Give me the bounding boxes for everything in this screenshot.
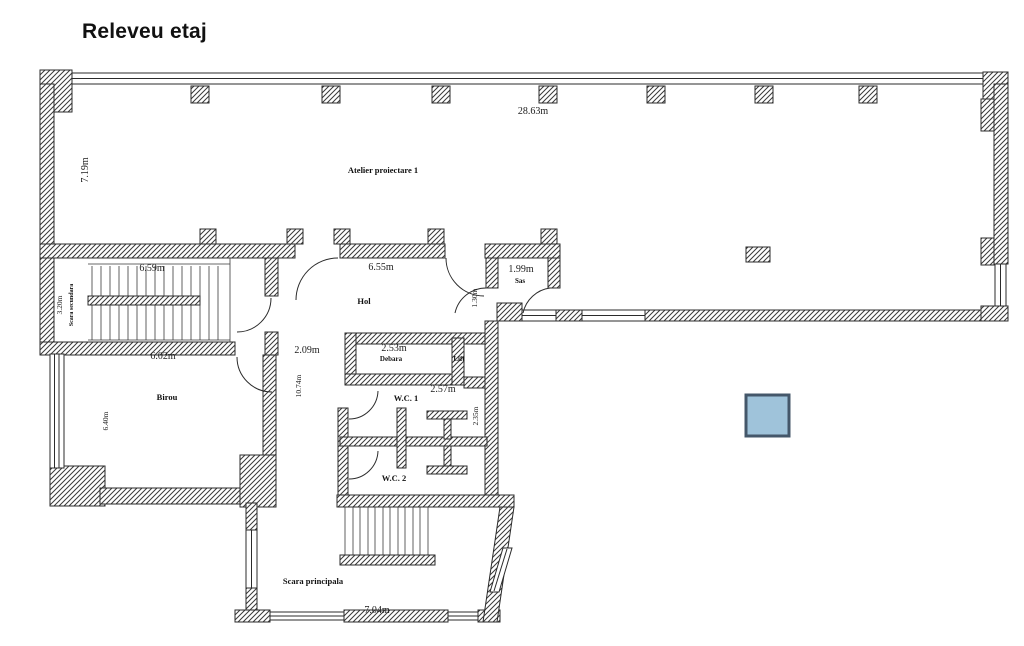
room-scara-secundara: Scara secundara [69,284,75,327]
dim-atelier-height: 7.19m [80,157,91,183]
room-lift: Lift [453,355,465,363]
dim-hol-width: 6.55m [368,262,394,273]
dim-debara-width: 2.53m [381,343,407,354]
stairs-main [340,507,435,565]
floor-plan-page: Releveu etaj [0,0,1024,646]
dim-stairs-top: 6.59m [139,263,165,274]
room-wc2: W.C. 2 [382,473,406,483]
dim-wc-width: 2.35m [471,406,480,425]
dim-corridor-width: 2.09m [294,345,320,356]
dim-sas-width: 1.99m [508,264,534,275]
room-birou: Birou [157,392,178,402]
dim-lift-width: 2.57m [430,384,456,395]
room-wc1: W.C. 1 [394,393,418,403]
dim-stairs-width: 3.20m [55,295,64,314]
room-scara-principala: Scara principala [283,576,344,586]
room-hol: Hol [357,296,371,306]
dim-corridor-length: 10.74m [294,374,303,397]
room-sas: Sas [515,277,525,285]
floor-plan-drawing: 28.63m 7.19m Atelier proiectare 1 6.55m … [0,0,1024,646]
dim-scara-width: 7.04m [364,605,390,616]
dim-sas-door: 1.30m [470,288,479,307]
windows [50,354,64,468]
room-debara: Debara [380,355,403,363]
labels: 28.63m 7.19m Atelier proiectare 1 6.55m … [55,106,548,616]
highlight-marker [746,395,789,436]
room-atelier: Atelier proiectare 1 [348,165,418,175]
dim-birou-width: 6.02m [150,351,176,362]
dim-atelier-width: 28.63m [518,106,549,117]
dim-birou-height: 6.40m [101,411,110,430]
